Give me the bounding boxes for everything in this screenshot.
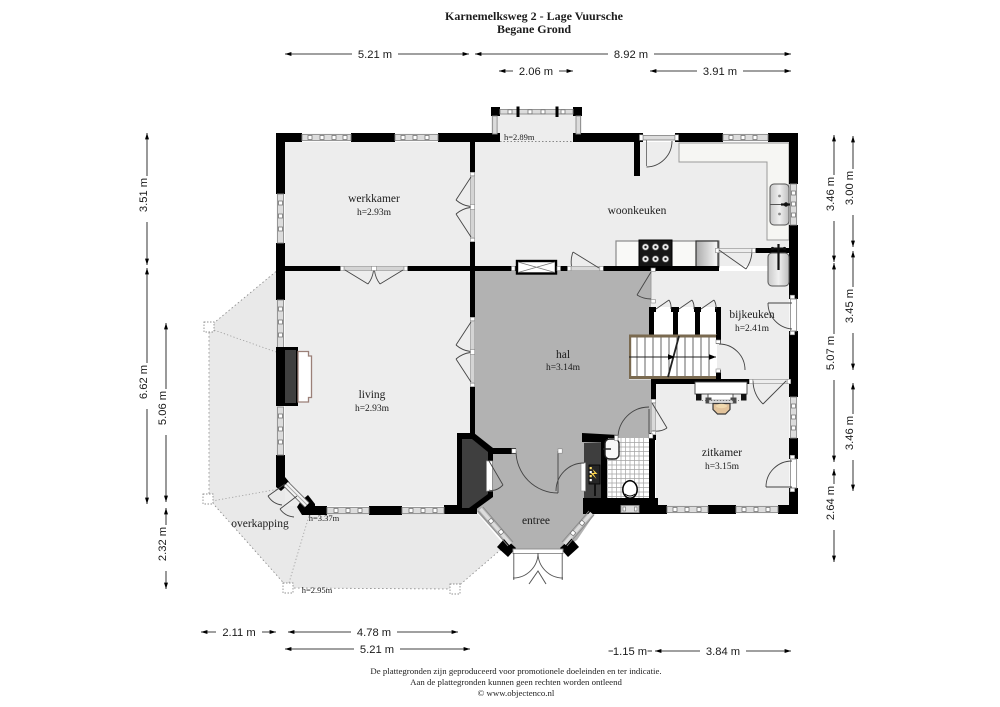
svg-text:4.78 m: 4.78 m [357,627,391,639]
svg-text:5.06 m: 5.06 m [157,391,169,425]
svg-text:3.51 m: 3.51 m [138,178,150,212]
svg-text:zitkamer: zitkamer [702,447,742,459]
svg-text:2.11 m: 2.11 m [222,627,255,639]
svg-text:h=2.41m: h=2.41m [735,324,770,334]
svg-text:3.84 m: 3.84 m [706,646,740,658]
svg-text:h=3.37m: h=3.37m [309,513,340,523]
svg-text:h=2.95m: h=2.95m [302,585,333,595]
svg-text:2.32 m: 2.32 m [157,527,169,561]
svg-text:h=2.89m: h=2.89m [504,132,535,142]
svg-text:3.91 m: 3.91 m [703,66,737,78]
svg-text:© www.objectenco.nl: © www.objectenco.nl [478,688,555,698]
svg-text:3.00 m: 3.00 m [844,171,856,205]
svg-text:woonkeuken: woonkeuken [608,205,667,217]
svg-text:Aan de plattegronden kunnen ge: Aan de plattegronden kunnen geen rechten… [410,677,622,687]
svg-text:hal: hal [556,349,570,361]
svg-text:overkapping: overkapping [231,518,289,530]
svg-text:Karnemelksweg 2 - Lage Vuursch: Karnemelksweg 2 - Lage Vuursche [445,9,624,23]
svg-text:3.46 m: 3.46 m [844,416,856,450]
svg-text:h=3.14m: h=3.14m [546,363,581,373]
svg-text:bijkeuken: bijkeuken [729,309,775,321]
svg-text:5.21 m: 5.21 m [360,644,394,656]
svg-text:werkkamer: werkkamer [348,193,400,205]
svg-text:3.45 m: 3.45 m [844,289,856,323]
svg-text:5.21 m: 5.21 m [358,49,392,61]
svg-text:3.46 m: 3.46 m [825,177,837,211]
svg-text:6.62 m: 6.62 m [138,365,150,399]
svg-text:Begane Grond: Begane Grond [497,22,571,36]
svg-text:1.15 m: 1.15 m [613,646,647,658]
svg-text:h=3.15m: h=3.15m [705,462,740,472]
svg-text:De plattegronden zijn geproduc: De plattegronden zijn geproduceerd voor … [370,666,661,676]
svg-text:entree: entree [522,515,550,527]
svg-text:h=2.93m: h=2.93m [355,404,390,414]
svg-text:living: living [359,389,386,401]
svg-text:2.64 m: 2.64 m [825,486,837,520]
svg-text:8.92 m: 8.92 m [614,49,648,61]
svg-text:5.07 m: 5.07 m [825,336,837,370]
svg-text:2.06 m: 2.06 m [519,66,553,78]
svg-text:h=2.93m: h=2.93m [357,208,392,218]
